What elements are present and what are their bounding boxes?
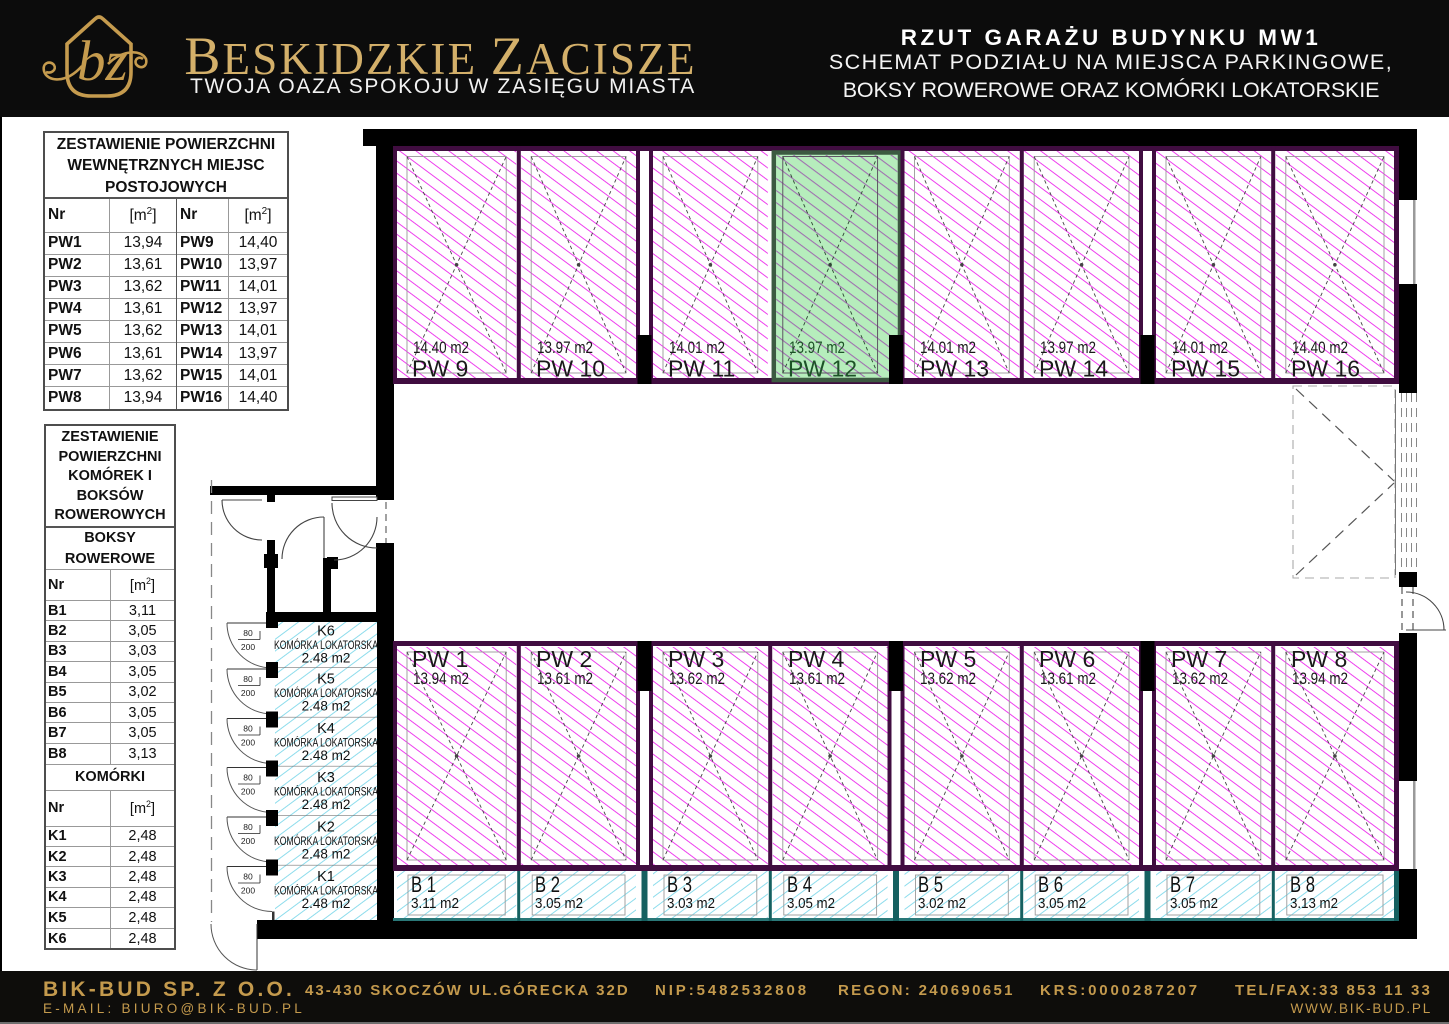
svg-text:PW 1: PW 1: [412, 646, 468, 672]
svg-text:PW 12: PW 12: [788, 356, 857, 382]
svg-text:80: 80: [243, 822, 253, 832]
svg-text:3.03 m2: 3.03 m2: [667, 896, 715, 912]
svg-text:PW 10: PW 10: [536, 356, 605, 382]
svg-text:3.05 m2: 3.05 m2: [535, 896, 583, 912]
svg-text:3.02 m2: 3.02 m2: [918, 896, 966, 912]
svg-text:13.94 m2: 13.94 m2: [1292, 670, 1348, 688]
svg-text:200: 200: [241, 738, 255, 748]
svg-text:PW 7: PW 7: [1171, 646, 1227, 672]
svg-text:13.94 m2: 13.94 m2: [413, 670, 469, 688]
svg-text:13.61 m2: 13.61 m2: [537, 670, 593, 688]
svg-text:80: 80: [243, 628, 253, 638]
svg-text:13.61 m2: 13.61 m2: [789, 670, 845, 688]
svg-text:PW 15: PW 15: [1171, 356, 1240, 382]
svg-text:PW 6: PW 6: [1039, 646, 1095, 672]
svg-text:PW 9: PW 9: [412, 356, 468, 382]
svg-text:B 8: B 8: [1290, 872, 1315, 897]
svg-text:3.05 m2: 3.05 m2: [1038, 896, 1086, 912]
svg-text:B 3: B 3: [667, 872, 692, 897]
svg-text:2.48 m2: 2.48 m2: [302, 896, 351, 911]
svg-text:PW 13: PW 13: [920, 356, 989, 382]
svg-text:200: 200: [241, 836, 255, 846]
svg-text:PW 14: PW 14: [1039, 356, 1108, 382]
svg-text:200: 200: [241, 787, 255, 797]
svg-text:PW 11: PW 11: [668, 356, 735, 382]
svg-text:14.01 m2: 14.01 m2: [920, 339, 976, 357]
svg-text:B 6: B 6: [1038, 872, 1063, 897]
svg-text:200: 200: [241, 886, 255, 896]
svg-text:13.97 m2: 13.97 m2: [1040, 339, 1096, 357]
svg-text:2.48 m2: 2.48 m2: [302, 699, 351, 714]
svg-text:2.48 m2: 2.48 m2: [302, 748, 351, 763]
svg-text:14.40 m2: 14.40 m2: [1292, 339, 1348, 357]
svg-text:80: 80: [243, 674, 253, 684]
svg-text:PW 8: PW 8: [1291, 646, 1347, 672]
svg-text:B 5: B 5: [918, 872, 943, 897]
svg-text:200: 200: [241, 688, 255, 698]
svg-text:80: 80: [243, 773, 253, 783]
svg-text:PW 5: PW 5: [920, 646, 976, 672]
svg-text:13.97 m2: 13.97 m2: [789, 339, 845, 357]
svg-text:PW 4: PW 4: [788, 646, 844, 672]
svg-text:13.97 m2: 13.97 m2: [537, 339, 593, 357]
svg-text:14.01 m2: 14.01 m2: [669, 339, 725, 357]
svg-text:PW 2: PW 2: [536, 646, 592, 672]
svg-text:B 7: B 7: [1170, 872, 1195, 897]
svg-text:3.05 m2: 3.05 m2: [1170, 896, 1218, 912]
svg-text:B 2: B 2: [535, 872, 560, 897]
svg-text:3.05 m2: 3.05 m2: [787, 896, 835, 912]
svg-text:3.11 m2: 3.11 m2: [411, 896, 459, 912]
svg-text:13.61 m2: 13.61 m2: [1040, 670, 1096, 688]
svg-text:2.48 m2: 2.48 m2: [302, 797, 351, 812]
svg-text:13.62 m2: 13.62 m2: [920, 670, 976, 688]
svg-text:13.62 m2: 13.62 m2: [1172, 670, 1228, 688]
svg-text:200: 200: [241, 642, 255, 652]
svg-text:14.40 m2: 14.40 m2: [413, 339, 469, 357]
svg-text:PW 3: PW 3: [668, 646, 724, 672]
svg-text:B 4: B 4: [787, 872, 812, 897]
svg-text:B 1: B 1: [411, 872, 436, 897]
svg-text:PW 16: PW 16: [1291, 356, 1360, 382]
svg-text:3.13 m2: 3.13 m2: [1290, 896, 1338, 912]
svg-text:80: 80: [243, 724, 253, 734]
svg-text:13.62 m2: 13.62 m2: [669, 670, 725, 688]
svg-text:14.01 m2: 14.01 m2: [1172, 339, 1228, 357]
svg-text:2.48 m2: 2.48 m2: [302, 847, 351, 862]
svg-text:80: 80: [243, 872, 253, 882]
svg-text:2.48 m2: 2.48 m2: [302, 651, 351, 666]
